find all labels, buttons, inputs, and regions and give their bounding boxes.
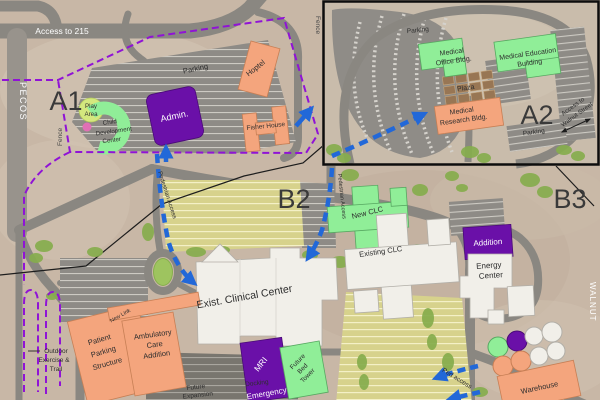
pecos-street-label: PECOS — [18, 82, 28, 121]
walnut-street-label: WALNUT — [588, 282, 597, 321]
zone-a1-label: A1 — [49, 86, 82, 116]
fence-label-inset: Fence — [314, 16, 321, 34]
play-area-label-2: Area — [84, 111, 98, 118]
utility-building-1 — [507, 285, 535, 316]
play-area-label-1: Play — [85, 103, 98, 110]
outdoor-trail-label-3: Trail — [50, 366, 63, 373]
play-area-dot — [83, 123, 92, 132]
zone-b3-label: B3 — [553, 184, 586, 214]
a2-inset: Parking Parking Medical Office Bldg. Med… — [322, 0, 600, 166]
zone-a2-label: A2 — [520, 100, 553, 130]
fence-label-a1: Fence — [57, 128, 64, 146]
utility-building-2 — [488, 310, 504, 324]
campus-site-plan-map: Access to 215 PECOS WALNUT A1 B2 B3 Park… — [0, 0, 600, 400]
energy-center-label-1: Energy — [476, 260, 502, 271]
zone-b2-label: B2 — [277, 184, 310, 214]
energy-center-label-2: Center — [479, 270, 504, 281]
outdoor-trail-label-1: Outdoor — [44, 348, 68, 355]
access-215-label: Access to 215 — [35, 26, 89, 36]
outdoor-trail-label-2: Exercise & — [38, 357, 70, 364]
